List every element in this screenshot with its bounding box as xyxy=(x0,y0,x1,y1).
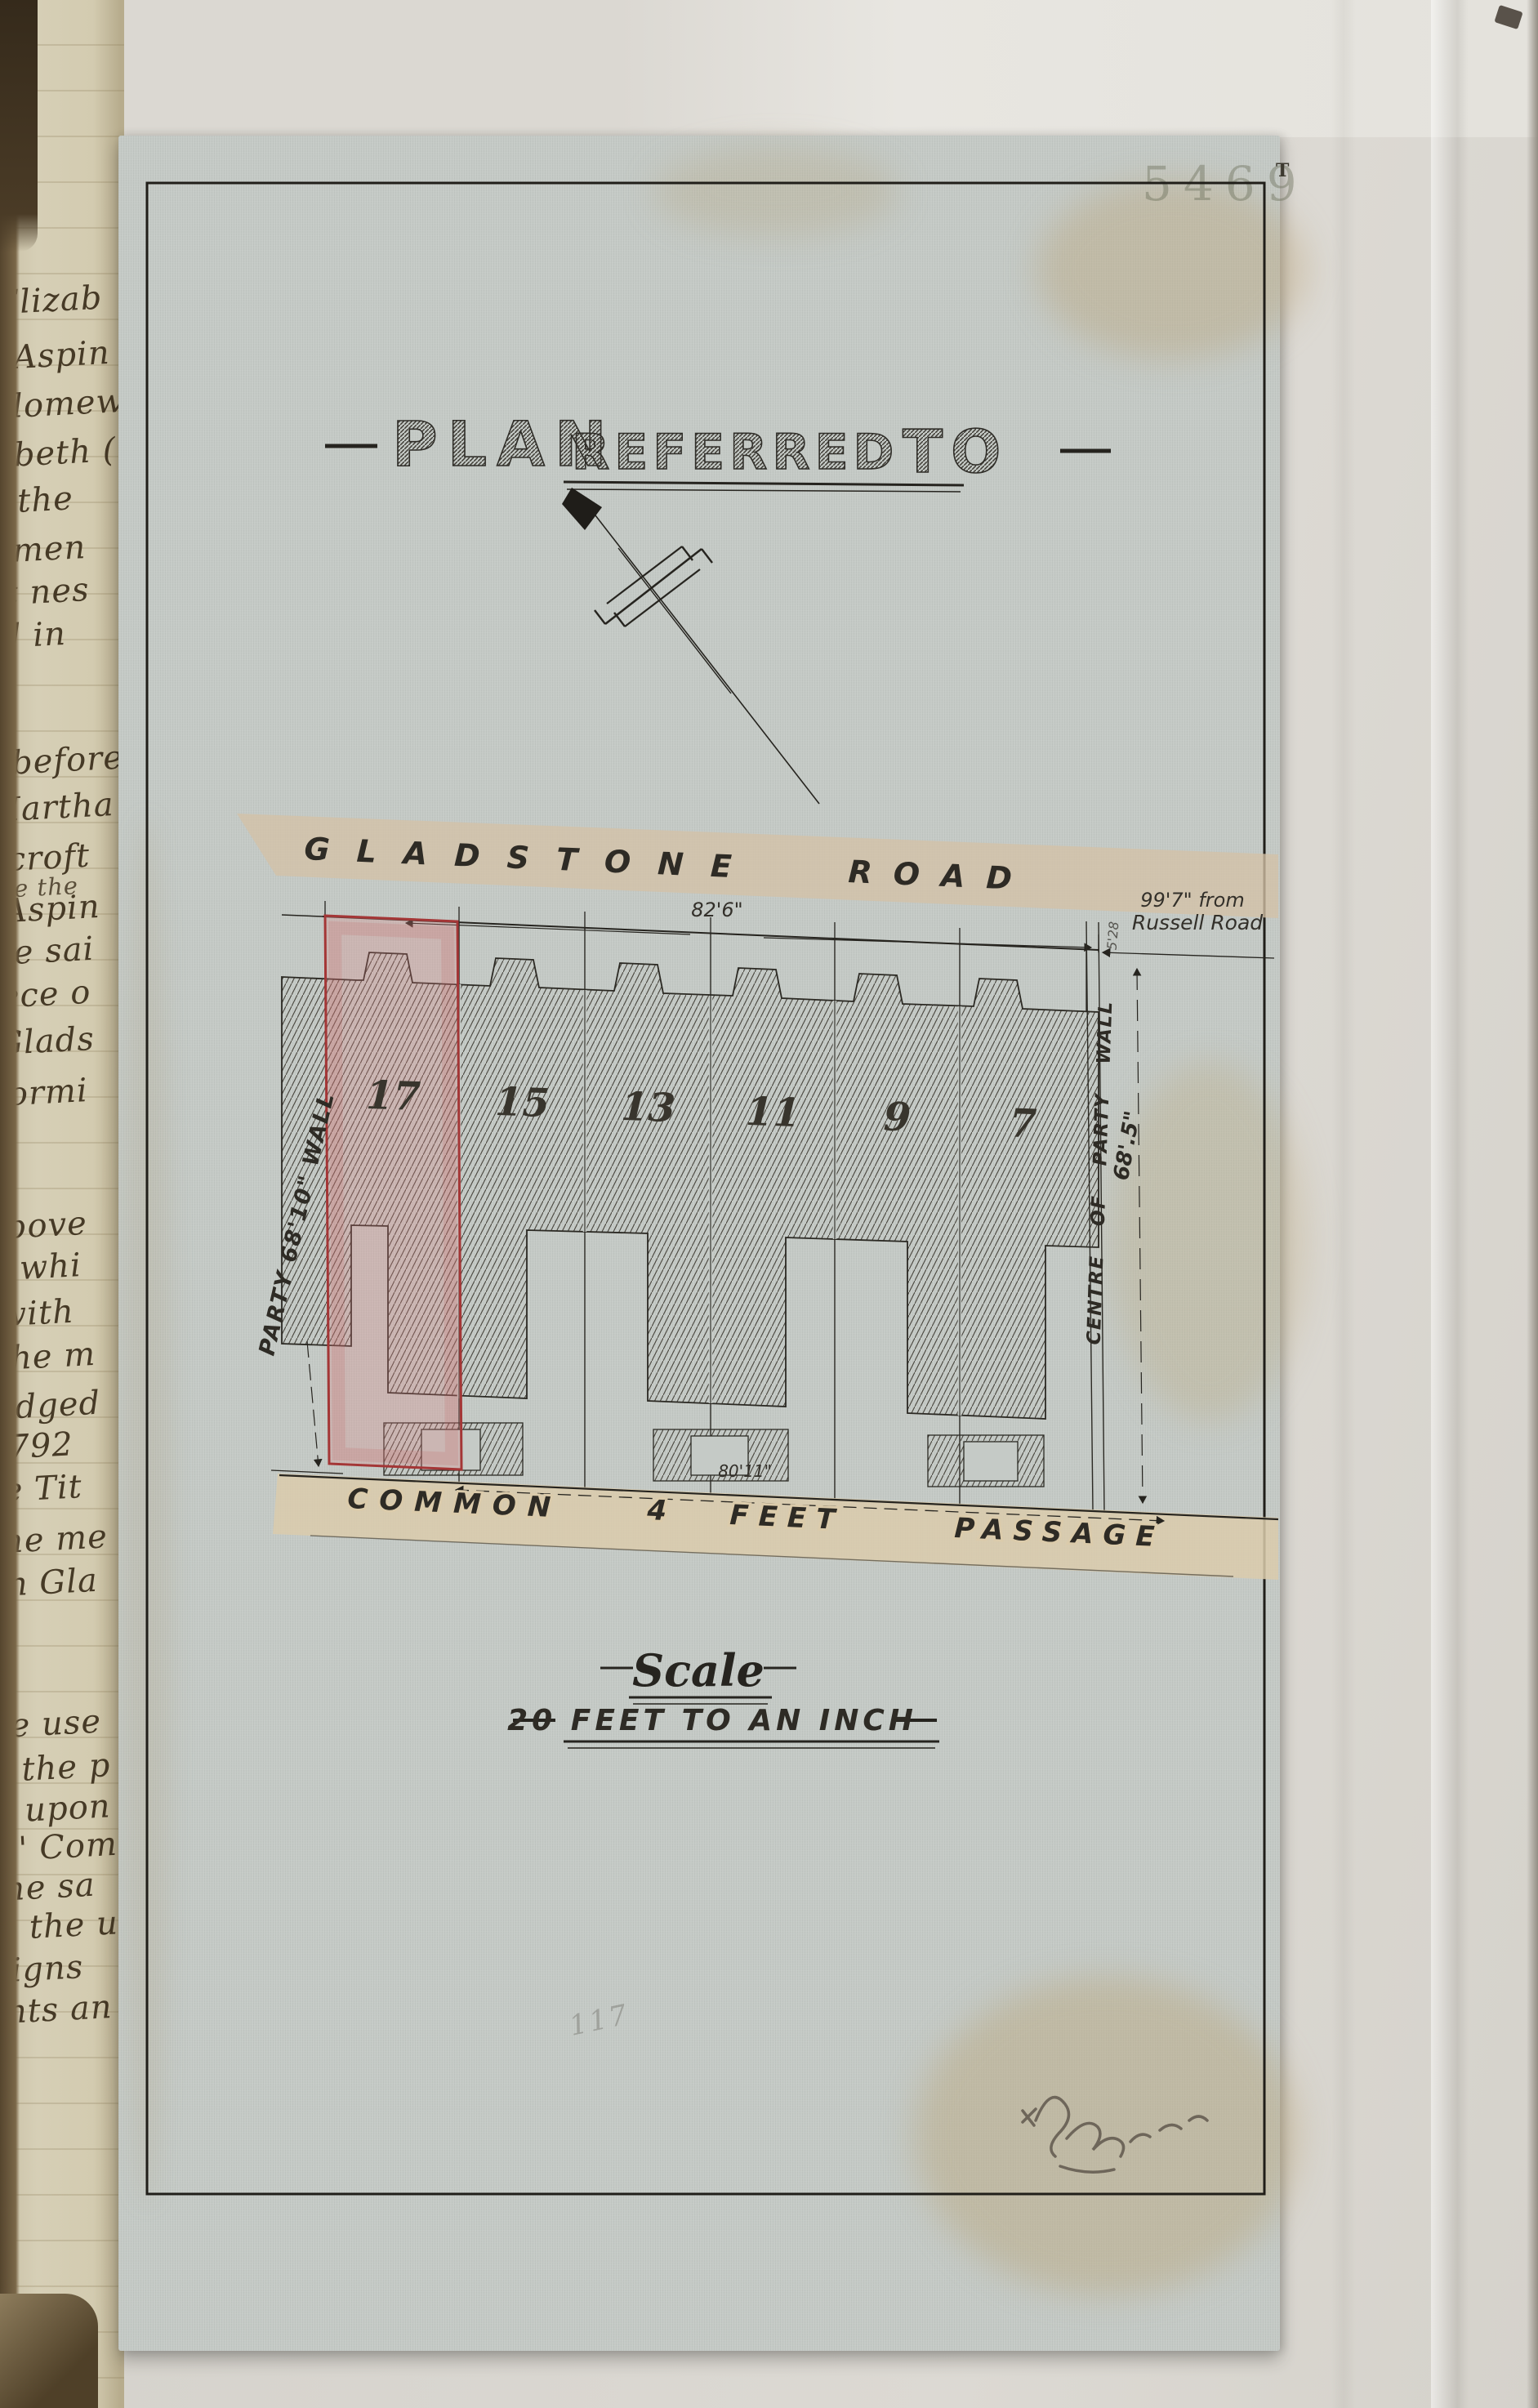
scale-note: Scale 20 FEET TO AN INCH xyxy=(507,1644,939,1748)
plot-number-7: 7 xyxy=(1009,1100,1037,1147)
signature-initials xyxy=(1023,2098,1207,2173)
outbuildings xyxy=(384,1423,1044,1487)
end-dimension-label: 5'28 xyxy=(1104,921,1122,950)
plot-number-17: 17 xyxy=(365,1072,421,1120)
right-party-wall: CENTRE OF PARTY WALL 68'.5" 5'28 xyxy=(1084,921,1146,1503)
gladstone-road: GLADSTONE ROAD xyxy=(237,814,1278,918)
title-word-referred: REFERRED xyxy=(572,424,898,481)
distance-note-line2: Russell Road xyxy=(1132,911,1263,934)
north-arrow xyxy=(562,488,819,804)
scale-text: 20 FEET TO AN INCH xyxy=(507,1704,917,1737)
scale-heading: Scale xyxy=(632,1644,765,1697)
distance-note-line1: 99'7" from xyxy=(1140,889,1244,912)
highlighted-plot-17 xyxy=(325,916,461,1469)
frontage-dimension-label: 82'6" xyxy=(691,899,742,921)
corner-mark: T xyxy=(1276,160,1290,181)
plot-number-13: 13 xyxy=(620,1084,676,1131)
passage-dimension: 80'11" xyxy=(718,1461,772,1481)
plot-number-9: 9 xyxy=(883,1094,912,1140)
right-wall-dimension: 68'.5" xyxy=(1109,1109,1145,1183)
plan-title: PLAN REFERRED TO xyxy=(325,408,1111,492)
pencil-number: 117 xyxy=(567,1998,633,2042)
plot-number-15: 15 xyxy=(494,1079,551,1126)
plan-drawing: 5469 T PLAN REFERRED TO xyxy=(0,0,1538,2408)
scanned-deed-page: Elizab Aspin olomew abeth ( s the amen i… xyxy=(0,0,1538,2408)
plot-number-11: 11 xyxy=(745,1089,801,1136)
passage-word-feet: FEET xyxy=(729,1499,845,1536)
passage-word-4: 4 xyxy=(646,1494,667,1527)
title-word-to: TO xyxy=(903,417,1009,486)
